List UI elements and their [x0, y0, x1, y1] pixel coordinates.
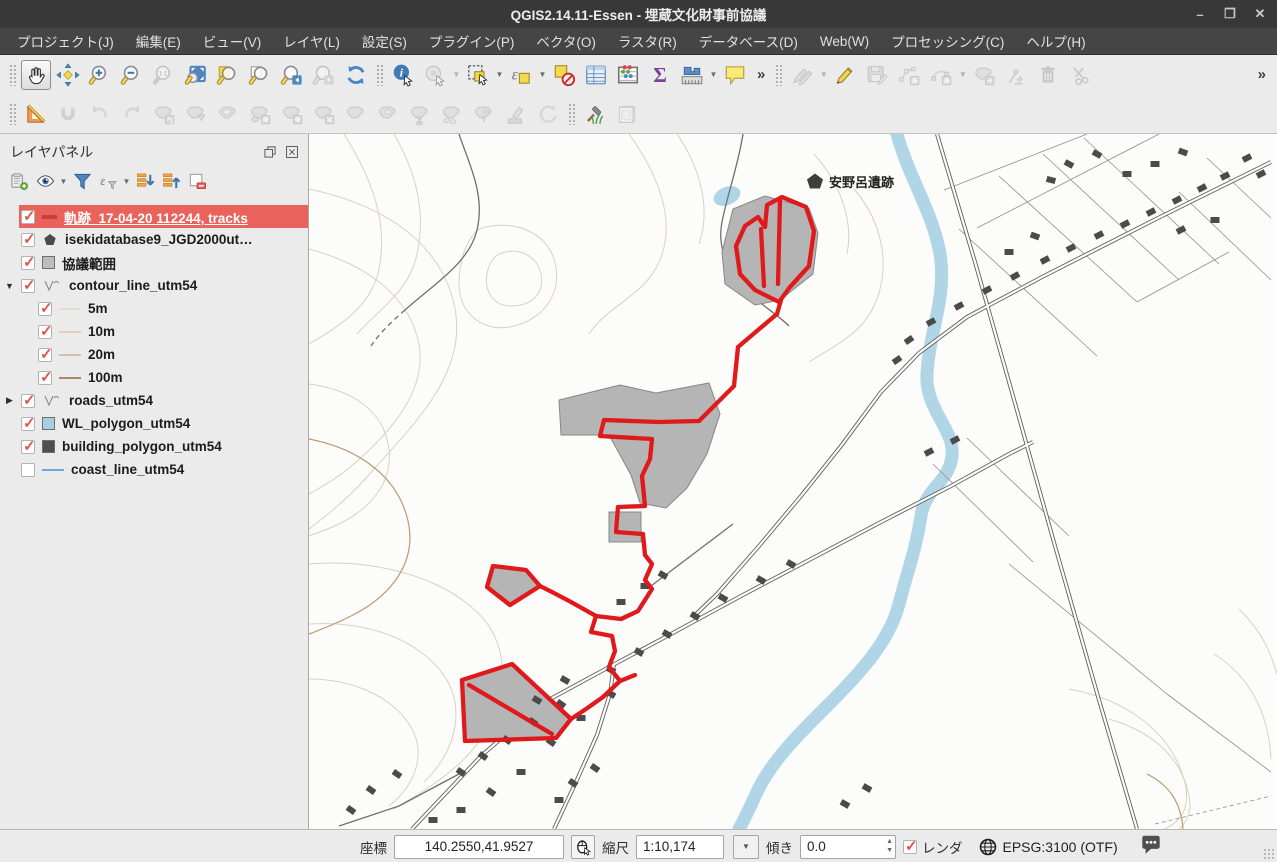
track-line-symbol-icon: [42, 215, 57, 219]
pen-drip-icon: [504, 102, 528, 126]
layer-isekidatabase[interactable]: isekidatabase9_JGD2000ut…: [0, 228, 308, 251]
cut-features-button: [1065, 60, 1095, 90]
action-icon: [423, 63, 447, 87]
layer-label: 10m: [88, 324, 115, 339]
field-calculator-button[interactable]: [613, 60, 643, 90]
layer-contour-5m[interactable]: 5m: [0, 297, 308, 320]
add-feature-icon: [897, 63, 921, 87]
layer-row-content: 20m: [19, 343, 308, 366]
layer-contour-100m[interactable]: 100m: [0, 366, 308, 389]
scissors-icon: [1068, 63, 1092, 87]
menu-settings[interactable]: 設定(S): [351, 27, 418, 55]
refresh-button[interactable]: [341, 60, 371, 90]
menu-processing[interactable]: プロセッシング(C): [880, 27, 1015, 55]
feature-action-button-dropdown-arrow-icon[interactable]: ▼: [451, 70, 462, 79]
node-tool-icon: [1004, 63, 1028, 87]
pencils-icon: [790, 63, 814, 87]
line-symbol-icon: [59, 308, 81, 310]
filter-legend-button[interactable]: [69, 169, 95, 193]
manage-visibility-button-dropdown-arrow-icon[interactable]: ▼: [58, 177, 69, 186]
identify-button[interactable]: i: [388, 60, 418, 90]
coordinate-input[interactable]: [394, 835, 564, 859]
merge-icon: [472, 102, 496, 126]
zoom-last-button[interactable]: [277, 60, 307, 90]
svg-text:Σ: Σ: [653, 65, 667, 87]
point-symbol-icon: [42, 232, 58, 248]
feature-action-button: [420, 60, 450, 90]
menu-help[interactable]: ヘルプ(H): [1015, 27, 1096, 55]
layer-label: 5m: [88, 301, 108, 316]
rotation-label: 傾き: [766, 837, 793, 857]
pan-map-button[interactable]: [21, 60, 51, 90]
fill-ring-button: [277, 99, 307, 129]
redo-button: [117, 99, 147, 129]
select-by-expression-button[interactable]: ε: [506, 60, 536, 90]
rotate-icon: [536, 102, 560, 126]
toolbar-grip[interactable]: [9, 103, 16, 125]
refresh-icon: [344, 63, 368, 87]
delete-ring-button: [309, 99, 339, 129]
statistics-button[interactable]: Σ: [645, 60, 675, 90]
rotate-feature-button: [149, 99, 179, 129]
toggle-extent-icon[interactable]: [571, 835, 595, 859]
layer-label: building_polygon_utm54: [62, 439, 222, 454]
funnel-icon: [72, 171, 93, 192]
map-canvas[interactable]: 安野呂遺跡: [309, 134, 1277, 829]
layer-label: roads_utm54: [69, 393, 153, 408]
delete-selected-button: [1033, 60, 1063, 90]
toolbar-overflow-right[interactable]: »: [1252, 66, 1272, 83]
deselect-all-button[interactable]: [549, 60, 579, 90]
line-symbol-icon: [59, 377, 81, 379]
maximize-button[interactable]: ❐: [1223, 6, 1237, 22]
toolbar-area: 1:1i▼▼ε▼Σ▼»▼▼»: [0, 55, 1277, 134]
snapping-button: [53, 99, 83, 129]
svg-text:ε: ε: [512, 66, 518, 83]
layer-label: 協議範囲: [62, 253, 116, 273]
layer-visibility-checkbox[interactable]: [21, 440, 35, 454]
line-symbol-icon: [59, 331, 81, 333]
delete-part-button: [341, 99, 371, 129]
add-group-button[interactable]: [6, 169, 32, 193]
split-parts-button: [437, 99, 467, 129]
layer-visibility-checkbox[interactable]: [38, 302, 52, 316]
layer-visibility-checkbox[interactable]: [21, 256, 35, 270]
expand-all-icon: [135, 171, 156, 192]
select-by-expression-button-dropdown-arrow-icon[interactable]: ▼: [537, 70, 548, 79]
layer-label: WL_polygon_utm54: [62, 416, 190, 431]
minimize-button[interactable]: –: [1193, 7, 1207, 22]
menu-raster[interactable]: ラスタ(R): [607, 27, 688, 55]
menu-vector[interactable]: ベクタ(O): [525, 27, 606, 55]
hand-icon: [24, 63, 48, 87]
add-group-icon: [9, 171, 30, 192]
deselect-icon: [552, 63, 576, 87]
scale-combobox[interactable]: 1:10,174: [636, 835, 724, 859]
map-tips-button[interactable]: [720, 60, 750, 90]
layer-row-content: 10m: [19, 320, 308, 343]
eye-icon: [35, 171, 56, 192]
measure-button[interactable]: [677, 60, 707, 90]
zoom-full-icon: [184, 63, 208, 87]
select-features-button[interactable]: [463, 60, 493, 90]
zoom-native-button: 1:1: [149, 60, 179, 90]
add-part-button: [245, 99, 275, 129]
layer-visibility-checkbox[interactable]: [21, 233, 35, 247]
layer-row-content: 100m: [19, 366, 308, 389]
layer-visibility-checkbox[interactable]: [21, 463, 35, 477]
polygon-symbol-icon: [42, 417, 55, 430]
reshape-button: [373, 99, 403, 129]
menu-view[interactable]: ビュー(V): [192, 27, 273, 55]
zoom-to-layer-button[interactable]: [245, 60, 275, 90]
toolbar-row-2: [0, 94, 1277, 133]
layer-panel-title: レイヤパネル: [10, 142, 256, 162]
site-annotation-label: 安野呂遺跡: [829, 175, 894, 190]
svg-text:1:1: 1:1: [159, 71, 168, 77]
select-features-button-dropdown-arrow-icon[interactable]: ▼: [494, 70, 505, 79]
circular-string-button-dropdown-arrow-icon[interactable]: ▼: [957, 70, 968, 79]
add-feature-button: [894, 60, 924, 90]
move-feature-button: [969, 60, 999, 90]
menu-web[interactable]: Web(W): [809, 30, 880, 53]
remove-layer-icon: [187, 171, 208, 192]
sigma-icon: Σ: [648, 63, 672, 87]
blob-down-icon: [184, 102, 208, 126]
layer-building-polygon[interactable]: building_polygon_utm54: [0, 435, 308, 458]
undo-button: [85, 99, 115, 129]
layer-row-content: WL_polygon_utm54: [19, 412, 308, 435]
line-symbol-icon: [42, 469, 64, 471]
split-parts-icon: [440, 102, 464, 126]
layer-visibility-checkbox[interactable]: [21, 417, 35, 431]
toolbar-grip[interactable]: [376, 64, 383, 86]
zoom-out-icon: [120, 63, 144, 87]
render-checkbox[interactable]: [903, 840, 917, 854]
layer-row-content: 5m: [19, 297, 308, 320]
remove-layer-button[interactable]: [184, 169, 210, 193]
polygon-symbol-icon: [42, 440, 55, 453]
layer-row-content: roads_utm54: [19, 389, 308, 412]
toolbar-grip[interactable]: [568, 103, 575, 125]
layer-visibility-checkbox[interactable]: [38, 371, 52, 385]
magnet-icon: [56, 102, 80, 126]
messages-button[interactable]: [1139, 833, 1163, 860]
menu-plugins[interactable]: プラグイン(P): [418, 27, 526, 55]
zoom-next-button: [309, 60, 339, 90]
layer-visibility-checkbox[interactable]: [21, 210, 35, 224]
status-bar: 座標 縮尺 1:10,174 ▼ 傾き ▲▼ レンダ EPSG:3100 (OT…: [0, 829, 1277, 862]
expander-closed-icon[interactable]: ▶: [0, 395, 19, 406]
zoom-out-button[interactable]: [117, 60, 147, 90]
layer-tree: 軌跡_17-04-20 112244, tracksisekidatabase9…: [0, 200, 308, 829]
hammer-grass-icon: [583, 102, 607, 126]
zoom-last-icon: [280, 63, 304, 87]
blob-x-icon: [312, 102, 336, 126]
layer-label: 軌跡_17-04-20 112244, tracks: [64, 207, 248, 227]
svg-text:ε: ε: [100, 173, 105, 187]
blob-ring-icon: [216, 102, 240, 126]
split-icon: [408, 102, 432, 126]
layer-tracks[interactable]: 軌跡_17-04-20 112244, tracks: [0, 205, 308, 228]
zoom-native-icon: 1:1: [152, 63, 176, 87]
zoom-to-selection-button[interactable]: [213, 60, 243, 90]
circular-string-button: [926, 60, 956, 90]
layer-row-content: contour_line_utm54: [19, 274, 308, 297]
qgis-window: { "window": { "title": "QGIS2.14.11-Esse…: [0, 0, 1277, 862]
menu-bar: プロジェクト(J)編集(E)ビュー(V)レイヤ(L)設定(S)プラグイン(P)ベ…: [0, 28, 1277, 55]
layer-row-content: 協議範囲: [19, 251, 308, 274]
split-features-button: [405, 99, 435, 129]
polygon-symbol-icon: [42, 256, 55, 269]
zoom-in-button[interactable]: [85, 60, 115, 90]
toolbar-row-1: 1:1i▼▼ε▼Σ▼»▼▼»: [0, 55, 1277, 94]
toolbar-overflow-mid[interactable]: »: [751, 66, 771, 83]
select-expr-icon: ε: [509, 63, 533, 87]
identify-icon: i: [391, 63, 415, 87]
scale-dropdown-arrow-icon[interactable]: ▼: [733, 835, 759, 859]
layer-kyougi-hani[interactable]: 協議範囲: [0, 251, 308, 274]
globe-icon: [978, 837, 998, 857]
layer-visibility-checkbox[interactable]: [21, 279, 35, 293]
coordinate-label: 座標: [360, 837, 387, 857]
layer-row-content: building_polygon_utm54: [19, 435, 308, 458]
layer-label: isekidatabase9_JGD2000ut…: [65, 232, 253, 247]
main-area: レイヤパネル ▼ε▼ 軌跡_17-04-20 112244, tracksise…: [0, 134, 1277, 829]
scale-label: 縮尺: [602, 837, 629, 857]
eps-filter-icon: ε: [98, 171, 119, 192]
line-symbol-icon: [59, 354, 81, 356]
layer-contour-10m[interactable]: 10m: [0, 320, 308, 343]
close-button[interactable]: ✕: [1253, 6, 1267, 22]
expander-open-icon[interactable]: ▼: [0, 281, 19, 291]
blob-rotate-icon: [152, 102, 176, 126]
osm-tools-button[interactable]: [580, 99, 610, 129]
menu-layer[interactable]: レイヤ(L): [272, 27, 351, 55]
multi-style-line-symbol-icon: [42, 278, 62, 293]
layer-row-content: isekidatabase9_JGD2000ut…: [19, 228, 308, 251]
expand-all-button[interactable]: [132, 169, 158, 193]
add-ring-button: [213, 99, 243, 129]
zoom-layer-icon: [248, 63, 272, 87]
window-controls: – ❐ ✕: [1193, 0, 1267, 28]
panel-close-icon[interactable]: [284, 144, 300, 160]
measure-button-dropdown-arrow-icon[interactable]: ▼: [708, 70, 719, 79]
blob-plain-icon: [344, 102, 368, 126]
layer-visibility-checkbox[interactable]: [38, 325, 52, 339]
layer-contour-20m[interactable]: 20m: [0, 343, 308, 366]
layer-label: 20m: [88, 347, 115, 362]
toolbar-grip[interactable]: [9, 64, 16, 86]
simplify-feature-button: [181, 99, 211, 129]
current-edits-button: [787, 60, 817, 90]
layer-panel-toolbar: ▼ε▼: [0, 164, 308, 200]
rotate-point-button: [533, 99, 563, 129]
composer-button: [612, 99, 642, 129]
attr-table-icon: [584, 63, 608, 87]
layer-label: coast_line_utm54: [71, 462, 184, 477]
toolbar-grip[interactable]: [775, 64, 782, 86]
set-square-icon: [24, 102, 48, 126]
merge-features-button: [469, 99, 499, 129]
blob-fill-icon: [280, 102, 304, 126]
zoom-sel-icon: [216, 63, 240, 87]
menu-project[interactable]: プロジェクト(J): [6, 27, 125, 55]
blob-part-icon: [248, 102, 272, 126]
layer-row-content: coast_line_utm54: [19, 458, 308, 481]
cad-tools-button[interactable]: [21, 99, 51, 129]
scroll-icon: [615, 102, 639, 126]
menu-edit[interactable]: 編集(E): [125, 27, 192, 55]
layer-panel: レイヤパネル ▼ε▼ 軌跡_17-04-20 112244, tracksise…: [0, 134, 309, 829]
layer-roads[interactable]: ▶roads_utm54: [0, 389, 308, 412]
select-icon: [466, 63, 490, 87]
window-title: QGIS2.14.11-Essen - 埋蔵文化財事前協議: [511, 4, 767, 24]
offset-curve-button: [501, 99, 531, 129]
collapse-all-icon: [161, 171, 182, 192]
move-feature-icon: [972, 63, 996, 87]
pan-to-selection-button[interactable]: [53, 60, 83, 90]
render-label: レンダ: [922, 837, 963, 857]
pencil-icon: [833, 63, 857, 87]
filter-expression-button-dropdown-arrow-icon[interactable]: ▼: [121, 177, 132, 186]
rotation-spinbox[interactable]: [800, 835, 896, 859]
layer-label: contour_line_utm54: [69, 278, 197, 293]
save-edits-button: [862, 60, 892, 90]
multi-style-line-symbol-icon: [42, 393, 62, 408]
panel-float-icon[interactable]: [262, 144, 278, 160]
current-edits-button-dropdown-arrow-icon[interactable]: ▼: [818, 70, 829, 79]
abacus-icon: [616, 63, 640, 87]
measure-icon: [680, 63, 704, 87]
layer-row-content: 軌跡_17-04-20 112244, tracks: [19, 205, 308, 228]
pan-sel-icon: [56, 63, 80, 87]
node-tool-button: [1001, 60, 1031, 90]
blob-ring2-icon: [376, 102, 400, 126]
menu-database[interactable]: データベース(D): [688, 27, 809, 55]
title-bar: QGIS2.14.11-Essen - 埋蔵文化財事前協議 – ❐ ✕: [0, 0, 1277, 28]
layer-panel-header: レイヤパネル: [0, 134, 308, 164]
manage-visibility-button[interactable]: [32, 169, 58, 193]
layer-visibility-checkbox[interactable]: [21, 394, 35, 408]
trash-icon: [1036, 63, 1060, 87]
zoom-next-icon: [312, 63, 336, 87]
layer-visibility-checkbox[interactable]: [38, 348, 52, 362]
layer-label: 100m: [88, 370, 123, 385]
layer-contour-line[interactable]: ▼contour_line_utm54: [0, 274, 308, 297]
rotation-spin-arrows-icon[interactable]: ▲▼: [886, 837, 893, 855]
zoom-in-icon: [88, 63, 112, 87]
zoom-full-button[interactable]: [181, 60, 211, 90]
message-bubble-icon: [1139, 833, 1163, 857]
attribute-table-button[interactable]: [581, 60, 611, 90]
crs-status[interactable]: EPSG:3100 (OTF): [978, 837, 1118, 857]
layer-coast-line[interactable]: coast_line_utm54: [0, 458, 308, 481]
maptip-icon: [723, 63, 747, 87]
crs-label: EPSG:3100 (OTF): [1003, 839, 1118, 855]
resize-grip[interactable]: [1263, 848, 1275, 860]
scale-value: 1:10,174: [643, 839, 696, 854]
layer-wl-polygon[interactable]: WL_polygon_utm54: [0, 412, 308, 435]
circular-icon: [929, 63, 953, 87]
filter-expression-button[interactable]: ε: [95, 169, 121, 193]
undo-icon: [88, 102, 112, 126]
save-edit-icon: [865, 63, 889, 87]
toggle-editing-button[interactable]: [830, 60, 860, 90]
collapse-all-button[interactable]: [158, 169, 184, 193]
redo-icon: [120, 102, 144, 126]
